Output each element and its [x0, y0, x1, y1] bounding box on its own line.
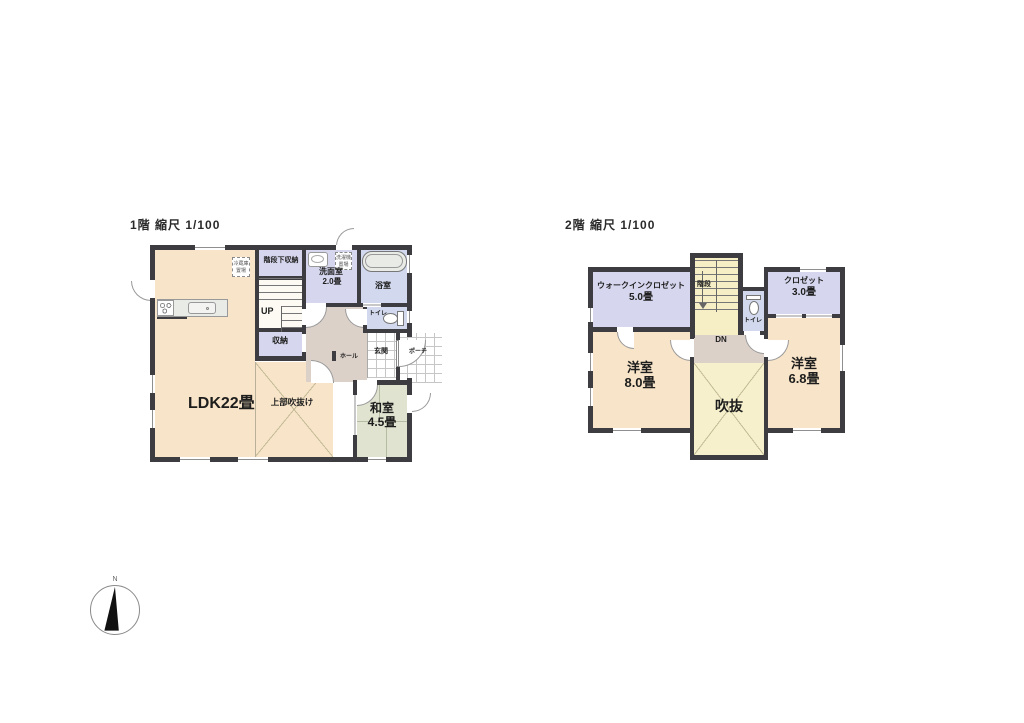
floorplan-canvas: 1階 縮尺 1/100 2階 縮尺 1/100: [0, 0, 1024, 723]
window: [150, 410, 155, 428]
door-arc-sidedoor: [336, 228, 354, 246]
entrance-step-line: [367, 333, 368, 378]
wall: [764, 363, 768, 460]
window: [180, 457, 210, 462]
compass-north-label: N: [112, 576, 117, 584]
sliding-door: [806, 314, 832, 318]
drain-icon: [206, 307, 209, 310]
ldk-void-divider: [255, 362, 256, 457]
bath-door: [363, 303, 381, 307]
label-washroom: 洗面室: [319, 268, 343, 277]
door-gap: [744, 331, 760, 335]
window: [840, 345, 845, 371]
label-dn: DN: [715, 336, 727, 345]
window: [195, 245, 225, 250]
window: [407, 255, 412, 273]
door-gap: [357, 380, 377, 385]
room-ldk: [155, 250, 255, 457]
window: [588, 353, 593, 371]
wall: [593, 327, 690, 332]
wall: [150, 245, 412, 250]
door-gap: [150, 280, 155, 298]
door-gap: [407, 395, 412, 413]
wall: [150, 245, 155, 462]
wall: [357, 250, 361, 307]
label-under-stair-storage: 階段下収納: [264, 257, 299, 265]
label-storage: 収納: [272, 337, 288, 346]
floor1-plan: 冷蔵庫 置場 洗濯機 置場 LDK22畳 上部吹抜け 和室 4.5畳 洗面室 2…: [150, 245, 442, 462]
label-closet: クロゼット: [784, 277, 824, 286]
door-arc-backdoor: [131, 281, 151, 301]
fridge-label-2: 置場: [233, 268, 249, 275]
wall: [255, 356, 306, 361]
sliding-door: [776, 314, 802, 318]
label-wic: ウォークインクロゼット: [597, 282, 685, 291]
wall: [588, 267, 593, 433]
label-open-ceiling: 上部吹抜け: [271, 398, 314, 408]
label-bed1-size: 8.0畳: [624, 376, 655, 391]
wall: [407, 378, 412, 462]
toilet-tank-icon: [746, 295, 761, 300]
bathtub-inner-icon: [365, 254, 403, 268]
washbasin-bowl-icon: [311, 255, 324, 263]
wall: [332, 351, 336, 361]
door-gap: [302, 309, 306, 325]
window: [368, 457, 386, 462]
window: [407, 311, 412, 323]
label-porch: ポーチ: [409, 349, 427, 356]
window: [588, 388, 593, 406]
toilet-bowl-icon: [749, 301, 759, 315]
stove-icon: [157, 300, 174, 316]
door-gap: [336, 245, 352, 250]
toilet-tank-icon: [397, 311, 404, 326]
wall: [690, 363, 694, 460]
label-ldk: LDK22畳: [188, 395, 255, 413]
wall: [690, 455, 768, 460]
label-bath: 浴室: [375, 282, 391, 291]
wall: [396, 330, 400, 340]
label-void-2f: 吹抜: [715, 399, 743, 415]
window: [238, 457, 268, 462]
door-gap: [690, 339, 694, 357]
label-toilet-1f: トイレ: [369, 311, 387, 318]
label-closet-size: 3.0畳: [792, 287, 816, 298]
label-bed2: 洋室: [791, 357, 817, 372]
stairs-arrow-head: [699, 303, 707, 313]
sliding-door: [353, 395, 357, 435]
floor2-title: 2階 縮尺 1/100: [565, 216, 655, 233]
stairs-rail: [716, 260, 717, 312]
wall: [690, 253, 742, 258]
stairs-shaft: [281, 306, 302, 332]
front-door-leaf: [396, 340, 399, 367]
fridge-space: 冷蔵庫 置場: [232, 257, 250, 277]
label-up: UP: [261, 306, 274, 316]
label-bed1: 洋室: [627, 361, 653, 376]
label-washitsu-size: 4.5畳: [368, 416, 397, 429]
label-stairs: 階段: [697, 281, 711, 289]
floor2-plan: ウォークインクロゼット 5.0畳 階段 トイレ クロゼット 3.0畳 洋室 8.…: [588, 253, 846, 465]
window: [613, 428, 641, 433]
floor1-title: 1階 縮尺 1/100: [130, 216, 220, 233]
sink-icon: [188, 302, 216, 314]
wall: [738, 253, 743, 335]
washer-label-1: 洗濯機: [336, 255, 351, 262]
label-wic-size: 5.0畳: [629, 292, 653, 303]
label-toilet-2f: トイレ: [744, 318, 762, 325]
label-bed2-size: 6.8畳: [788, 372, 819, 387]
door-gap: [363, 309, 367, 325]
label-washitsu: 和室: [370, 402, 394, 415]
wall: [764, 267, 768, 335]
window: [793, 428, 821, 433]
window: [150, 375, 155, 393]
door-gap: [617, 327, 633, 332]
door-arc-washitsu-ext: [412, 393, 431, 412]
label-washroom-size: 2.0畳: [322, 278, 341, 287]
door-gap: [764, 339, 768, 357]
wall: [396, 367, 400, 383]
wall: [588, 267, 690, 272]
fridge-label-1: 冷蔵庫: [233, 261, 249, 268]
window: [800, 267, 826, 272]
door-gap: [302, 334, 306, 352]
stairs-treads: [259, 278, 302, 306]
wall: [363, 329, 412, 333]
door-gap: [306, 303, 326, 307]
label-hall: ホール: [340, 354, 358, 361]
label-entrance: 玄関: [374, 348, 388, 356]
compass: N: [85, 576, 145, 638]
window: [588, 308, 593, 322]
